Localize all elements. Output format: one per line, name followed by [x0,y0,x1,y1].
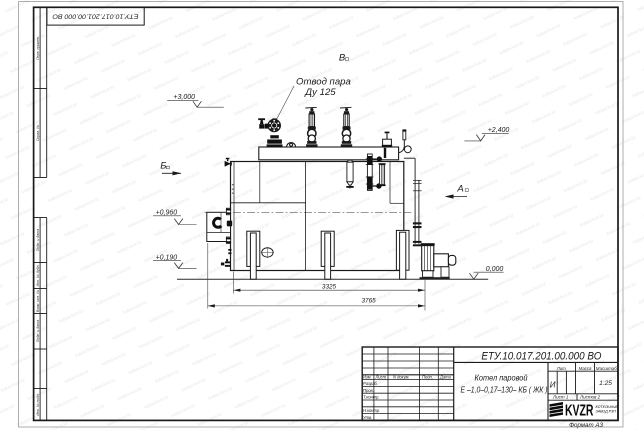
svg-text:+0,190: +0,190 [156,254,178,261]
svg-text:Инв. № подл.: Инв. № подл. [36,393,40,415]
svg-text:Формат А3: Формат А3 [569,422,603,429]
svg-text:1:25: 1:25 [599,380,612,387]
svg-text:Подп. и дата: Подп. и дата [36,229,40,252]
svg-text:ЕТУ.10.017.201.00.000 ВО: ЕТУ.10.017.201.00.000 ВО [52,13,138,20]
svg-text:Т.контр.: Т.контр. [363,395,380,400]
svg-text:И: И [550,381,556,390]
svg-text:Справ. №: Справ. № [36,125,40,141]
svg-text:N докум.: N докум. [393,375,410,380]
svg-text:Отвод пара: Отвод пара [296,77,351,88]
svg-text:В: В [339,53,346,64]
svg-text:0,000: 0,000 [486,266,504,273]
svg-text:3765: 3765 [361,298,376,305]
svg-text:А: А [456,183,463,194]
svg-text:Лит.: Лит. [556,366,567,371]
svg-text:Листов 2: Листов 2 [579,395,601,400]
svg-text:Дата: Дата [439,375,452,380]
svg-text:КОТЕЛЬНЫЙ: КОТЕЛЬНЫЙ [596,405,619,409]
svg-text:Пров.: Пров. [363,388,374,393]
svg-text:+2,400: +2,400 [488,127,510,134]
svg-text:Взам. инв. №: Взам. инв. № [36,290,40,312]
svg-text:Разраб.: Разраб. [363,381,378,386]
svg-text:Н.контр.: Н.контр. [363,408,380,413]
svg-text:Инв. № дубл.: Инв. № дубл. [36,264,40,286]
svg-text:Лист: Лист [375,375,387,380]
svg-text:Масштаб: Масштаб [596,366,618,371]
svg-text:Ду 125: Ду 125 [304,87,336,98]
svg-text:Котел паровой: Котел паровой [475,372,528,382]
svg-text:Подп.: Подп. [422,375,433,380]
svg-text:Е –1,0–0,17–130– КБ ( ЖК ): Е –1,0–0,17–130– КБ ( ЖК ) [461,385,548,394]
svg-text:3325: 3325 [322,283,337,290]
svg-text:Утв.: Утв. [363,415,372,420]
svg-text:ЕТУ.10.017.201.00.000 ВО: ЕТУ.10.017.201.00.000 ВО [481,350,602,362]
svg-text:KVZR: KVZR [565,402,594,419]
svg-text:Лист 1: Лист 1 [552,395,569,400]
svg-text:ЗАВОД РЗП: ЗАВОД РЗП [596,409,617,413]
svg-text:Подп. и дата: Подп. и дата [36,320,40,343]
svg-text:Изм.: Изм. [363,375,372,380]
svg-text:Перв. примен.: Перв. примен. [36,36,40,60]
svg-text:+0,960: +0,960 [156,210,178,217]
svg-text:Б: Б [160,161,166,172]
svg-text:Масса: Масса [579,366,592,371]
svg-text:+3,000: +3,000 [173,94,195,101]
